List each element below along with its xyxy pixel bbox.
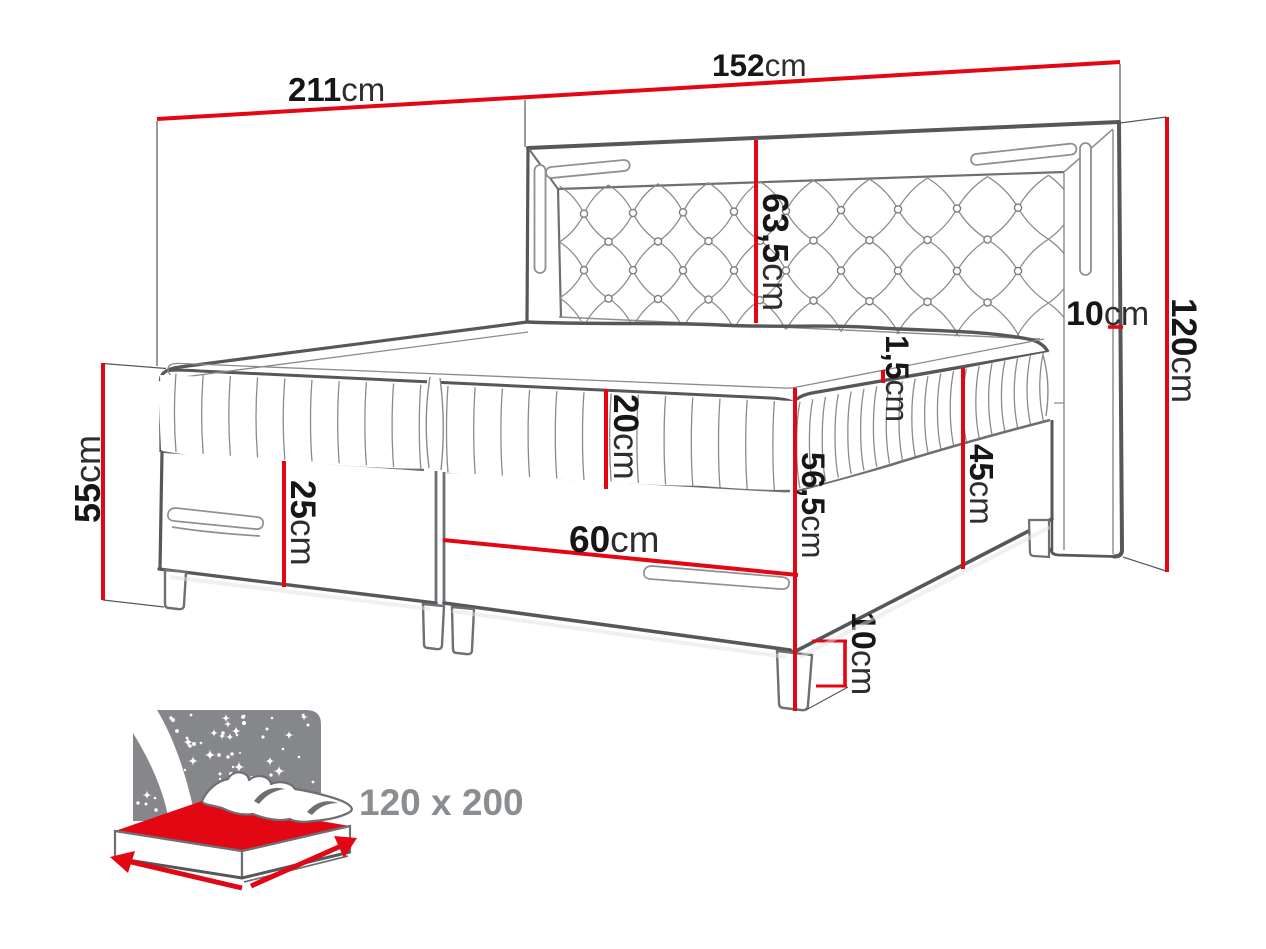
svg-text:56,5cm: 56,5cm (795, 452, 831, 559)
svg-text:10cm: 10cm (1066, 295, 1149, 333)
svg-text:152cm: 152cm (712, 47, 807, 83)
svg-text:20cm: 20cm (606, 394, 645, 480)
svg-text:120cm: 120cm (1164, 298, 1203, 403)
svg-text:55cm: 55cm (67, 435, 108, 523)
svg-text:45cm: 45cm (963, 444, 1000, 525)
svg-text:211cm: 211cm (288, 71, 385, 108)
svg-text:63,5cm: 63,5cm (755, 193, 796, 311)
svg-text:25cm: 25cm (283, 480, 322, 566)
svg-text:120 x 200: 120 x 200 (359, 782, 524, 823)
svg-text:60cm: 60cm (569, 519, 659, 560)
svg-text:1,5cm: 1,5cm (879, 335, 915, 422)
